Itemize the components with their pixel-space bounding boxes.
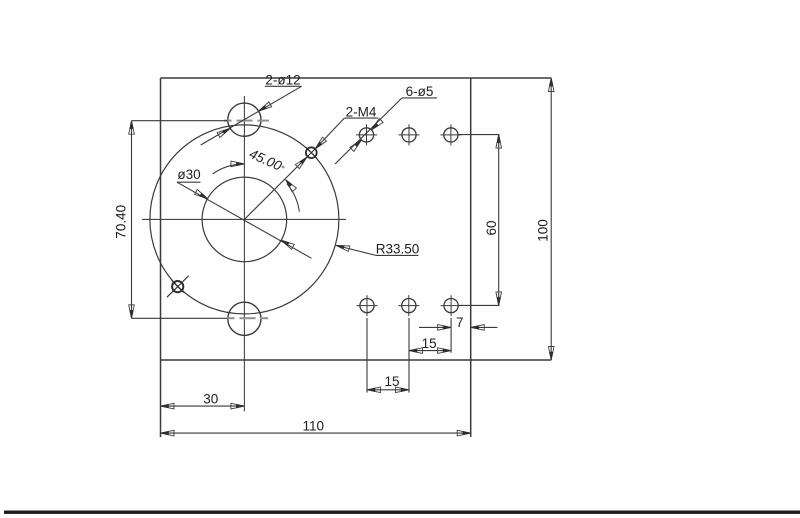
svg-text:2-M4: 2-M4 bbox=[346, 104, 377, 119]
svg-text:110: 110 bbox=[303, 418, 325, 433]
svg-text:100: 100 bbox=[536, 219, 551, 242]
svg-text:7: 7 bbox=[456, 315, 464, 330]
svg-text:60: 60 bbox=[484, 220, 499, 235]
svg-text:2-ø12: 2-ø12 bbox=[265, 73, 300, 88]
svg-text:ø30: ø30 bbox=[177, 167, 200, 182]
svg-text:70.40: 70.40 bbox=[114, 205, 129, 239]
svg-text:6-ø5: 6-ø5 bbox=[406, 84, 434, 99]
svg-text:30: 30 bbox=[203, 391, 218, 406]
svg-text:15: 15 bbox=[422, 336, 437, 351]
svg-text:R33.50: R33.50 bbox=[376, 241, 420, 256]
svg-text:15: 15 bbox=[384, 374, 399, 389]
